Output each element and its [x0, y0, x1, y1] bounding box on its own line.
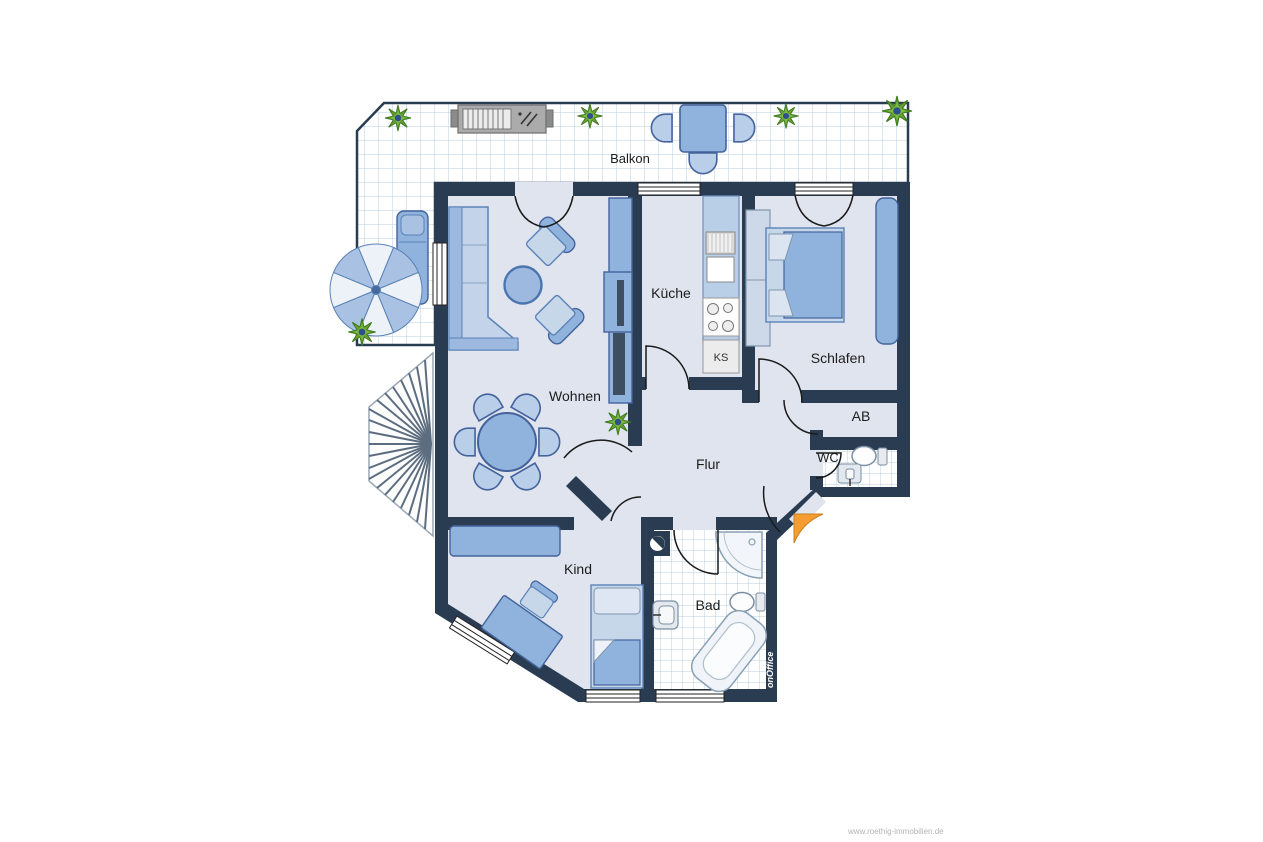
toilet-icon — [730, 593, 765, 612]
double-bed-icon — [766, 228, 844, 322]
fridge-icon: KS — [703, 340, 739, 373]
plant-icon — [774, 104, 799, 129]
wardrobe-icon — [876, 198, 898, 344]
plant-icon — [605, 409, 631, 435]
toilet-icon — [852, 447, 887, 466]
onoffice-logo: onOffice — [765, 652, 775, 688]
washing-machine-icon — [645, 531, 670, 556]
window — [433, 243, 447, 305]
apartment: Wohnen KS Küche — [433, 182, 910, 702]
living-label: Wohnen — [549, 388, 601, 404]
stove-icon — [703, 298, 739, 336]
entrance-arrow-icon — [794, 514, 823, 543]
single-bed-icon — [591, 585, 643, 688]
plant-icon — [348, 318, 375, 345]
child-label: Kind — [564, 561, 592, 577]
storage-label: AB — [852, 408, 871, 424]
storage-room: AB — [852, 408, 871, 424]
window — [656, 690, 724, 702]
window — [795, 183, 853, 195]
watermark: www.roethig-immobilien.de — [847, 827, 944, 836]
coffee-table-icon — [505, 267, 542, 304]
washbasin-icon — [838, 464, 861, 486]
bedroom-label: Schlafen — [811, 350, 865, 366]
plant-icon — [578, 104, 603, 129]
kitchen-label: Küche — [651, 285, 691, 301]
window — [586, 690, 640, 702]
grill-icon — [451, 105, 553, 133]
fridge-label: KS — [714, 352, 729, 364]
bay-roof-decoration — [369, 353, 433, 536]
balcony-label: Balkon — [610, 151, 650, 166]
hall-label: Flur — [696, 456, 720, 472]
plant-icon — [385, 105, 411, 131]
kitchen-sink-icon — [706, 232, 735, 282]
plant-icon — [882, 96, 912, 126]
window — [638, 183, 700, 195]
balcony-doorway — [515, 182, 573, 197]
floor-plan-drawing: Balkon — [0, 0, 1263, 842]
washbasin-icon — [653, 601, 678, 629]
hall: Flur — [696, 456, 720, 472]
floor-plan-page: Balkon — [0, 0, 1263, 842]
bath-label: Bad — [696, 597, 721, 613]
parasol-icon — [330, 244, 422, 336]
sideboard-icon — [450, 526, 560, 556]
